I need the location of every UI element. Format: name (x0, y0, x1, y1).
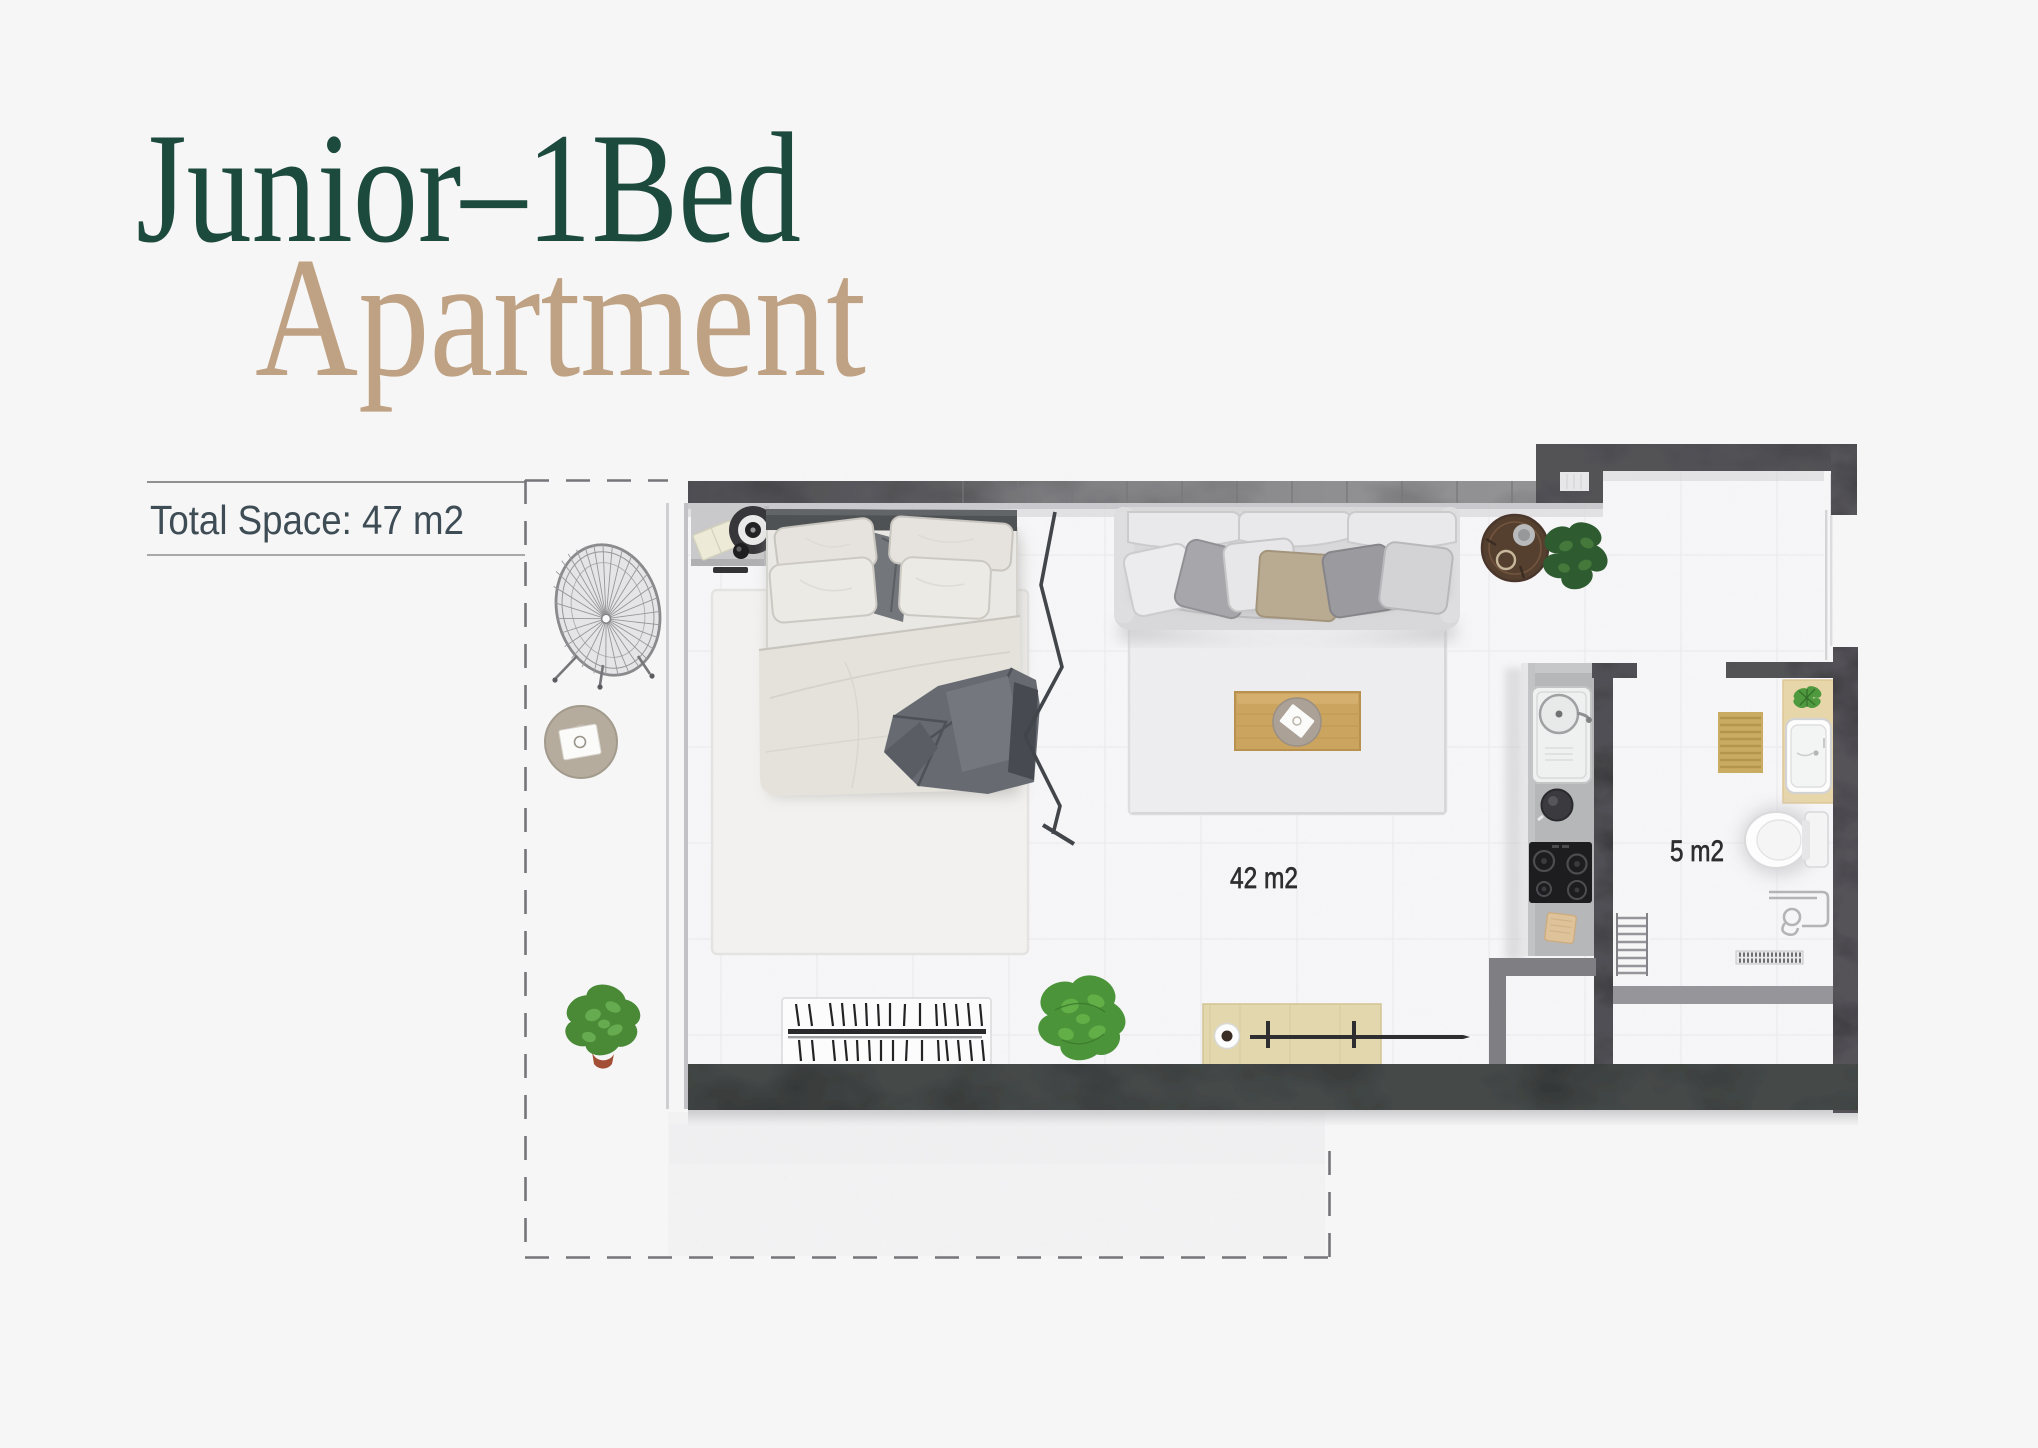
svg-text:Total Space: 47 m2: Total Space: 47 m2 (150, 497, 464, 543)
svg-text:Apartment: Apartment (255, 223, 866, 413)
svg-text:5 m2: 5 m2 (1670, 835, 1724, 868)
svg-text:42 m2: 42 m2 (1230, 862, 1298, 895)
